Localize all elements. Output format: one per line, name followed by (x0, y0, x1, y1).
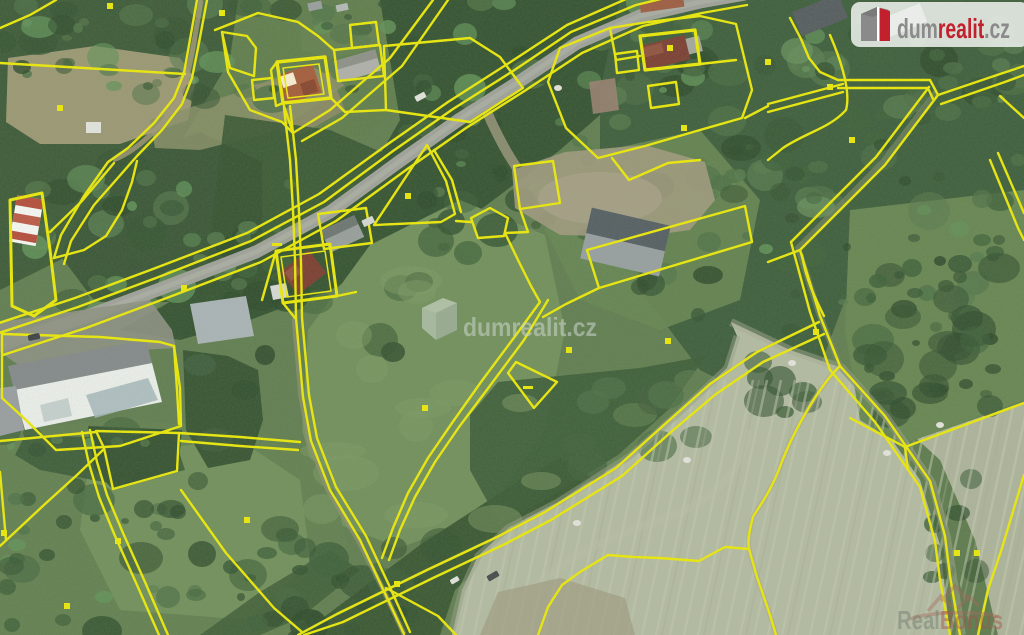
svg-text:dumrealit.cz: dumrealit.cz (897, 13, 1010, 44)
svg-text:RealBonus: RealBonus (897, 605, 1003, 635)
svg-text:dumrealit.cz: dumrealit.cz (463, 312, 597, 342)
